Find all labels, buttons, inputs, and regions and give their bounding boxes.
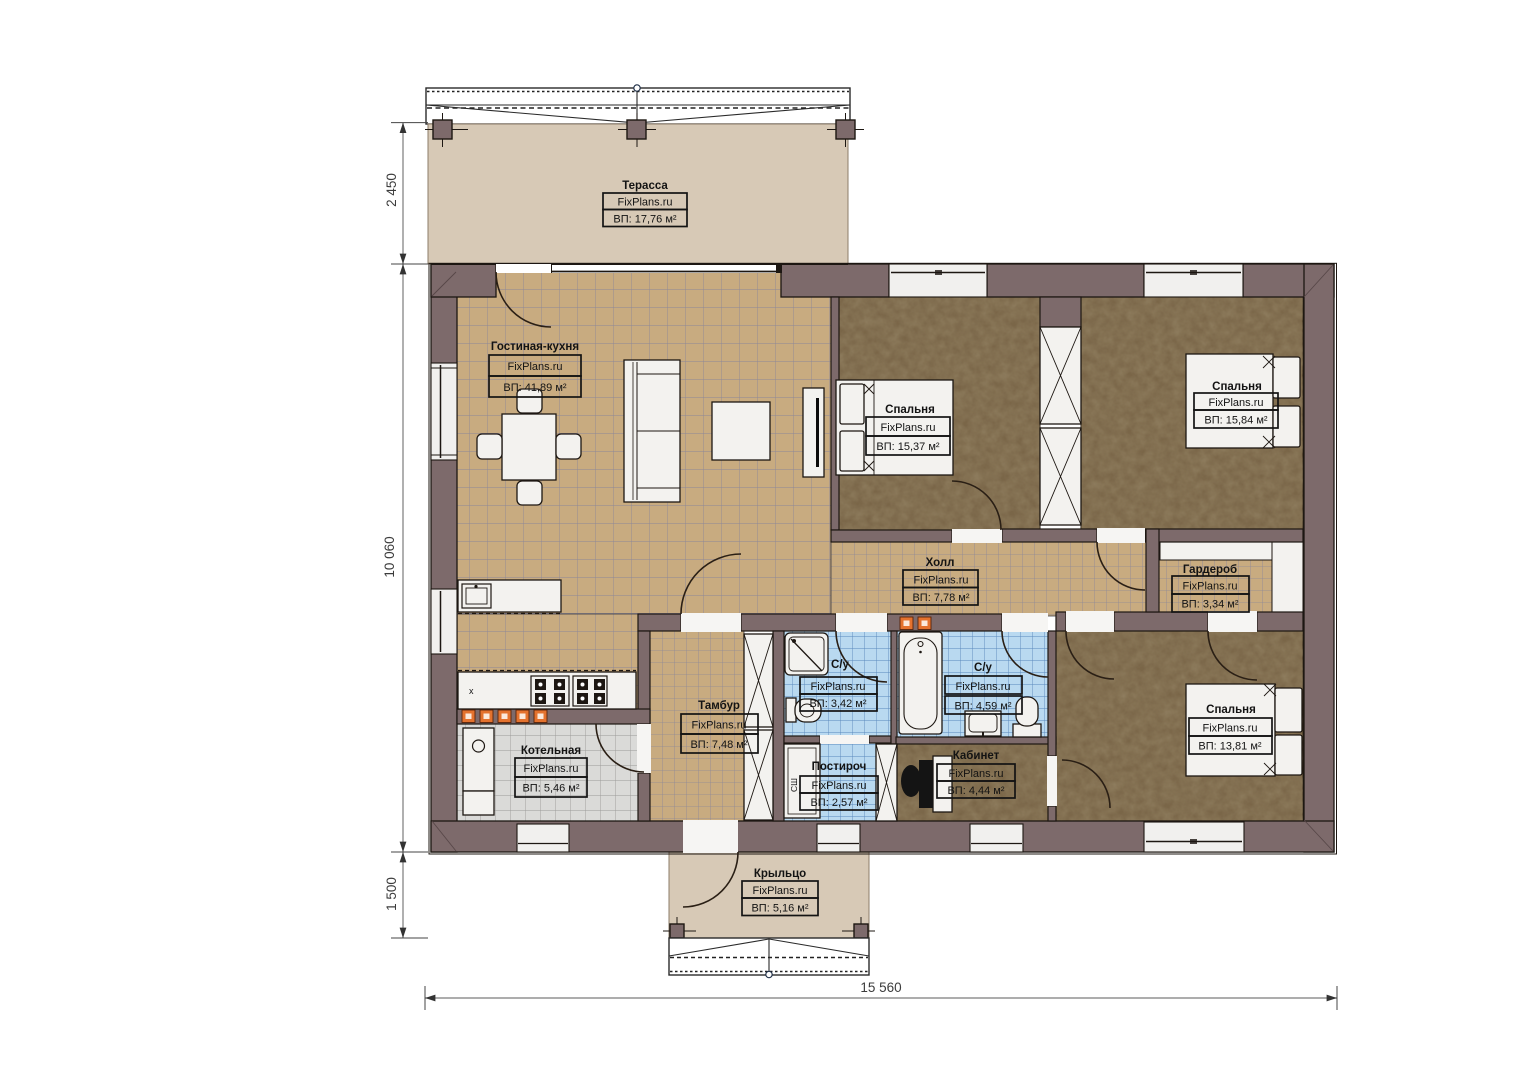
svg-text:Котельная: Котельная	[521, 745, 581, 757]
svg-text:FixPlans.ru: FixPlans.ru	[691, 720, 746, 732]
svg-text:FixPlans.ru: FixPlans.ru	[810, 681, 865, 693]
svg-text:FixPlans.ru: FixPlans.ru	[913, 575, 968, 587]
svg-text:FixPlans.ru: FixPlans.ru	[1208, 397, 1263, 409]
svg-text:2 450: 2 450	[384, 173, 399, 207]
svg-text:Терасса: Терасса	[622, 180, 668, 192]
svg-text:Постироч: Постироч	[812, 761, 867, 773]
svg-text:FixPlans.ru: FixPlans.ru	[1202, 723, 1257, 735]
svg-text:Спальня: Спальня	[1212, 381, 1262, 393]
svg-text:ВП: 4,44 м²: ВП: 4,44 м²	[947, 785, 1004, 797]
svg-text:ВП: 3,34 м²: ВП: 3,34 м²	[1181, 599, 1238, 611]
svg-text:Спальня: Спальня	[1206, 704, 1256, 716]
svg-text:FixPlans.ru: FixPlans.ru	[617, 197, 672, 209]
svg-text:Холл: Холл	[926, 557, 955, 569]
svg-text:ВП: 4,59 м²: ВП: 4,59 м²	[954, 701, 1011, 713]
svg-text:С/у: С/у	[974, 662, 993, 674]
svg-text:FixPlans.ru: FixPlans.ru	[752, 885, 807, 897]
svg-text:ВП: 2,57 м²: ВП: 2,57 м²	[810, 797, 867, 809]
svg-text:Гардероб: Гардероб	[1183, 564, 1237, 576]
svg-text:FixPlans.ru: FixPlans.ru	[811, 780, 866, 792]
svg-text:ВП: 41,89 м²: ВП: 41,89 м²	[503, 382, 567, 394]
svg-text:ВП: 15,37 м²: ВП: 15,37 м²	[876, 441, 940, 453]
svg-text:ВП: 13,81 м²: ВП: 13,81 м²	[1198, 741, 1262, 753]
svg-text:ВП: 17,76 м²: ВП: 17,76 м²	[613, 214, 677, 226]
svg-text:15 560: 15 560	[860, 980, 901, 995]
svg-text:СШ: СШ	[789, 778, 799, 792]
svg-text:ВП: 7,78 м²: ВП: 7,78 м²	[912, 592, 969, 604]
svg-text:ВП: 3,42 м²: ВП: 3,42 м²	[809, 698, 866, 710]
svg-text:10 060: 10 060	[382, 536, 397, 577]
svg-text:FixPlans.ru: FixPlans.ru	[1182, 581, 1237, 593]
svg-text:ВП: 5,16 м²: ВП: 5,16 м²	[751, 903, 808, 915]
svg-text:ВП: 5,46 м²: ВП: 5,46 м²	[522, 783, 579, 795]
svg-text:Гостиная-кухня: Гостиная-кухня	[491, 341, 579, 353]
svg-text:FixPlans.ru: FixPlans.ru	[507, 361, 562, 373]
svg-text:1 500: 1 500	[384, 877, 399, 911]
svg-text:FixPlans.ru: FixPlans.ru	[523, 763, 578, 775]
svg-text:ВП: 7,48 м²: ВП: 7,48 м²	[690, 739, 747, 751]
svg-text:Кабинет: Кабинет	[953, 750, 1000, 762]
svg-text:FixPlans.ru: FixPlans.ru	[880, 422, 935, 434]
svg-text:Крыльцо: Крыльцо	[754, 868, 806, 880]
svg-text:ВП: 15,84 м²: ВП: 15,84 м²	[1204, 415, 1268, 427]
svg-text:FixPlans.ru: FixPlans.ru	[955, 681, 1010, 693]
svg-text:С/у: С/у	[831, 659, 850, 671]
svg-text:x: x	[469, 686, 474, 696]
svg-text:FixPlans.ru: FixPlans.ru	[948, 768, 1003, 780]
svg-text:Тамбур: Тамбур	[698, 700, 740, 712]
svg-text:Спальня: Спальня	[885, 404, 935, 416]
